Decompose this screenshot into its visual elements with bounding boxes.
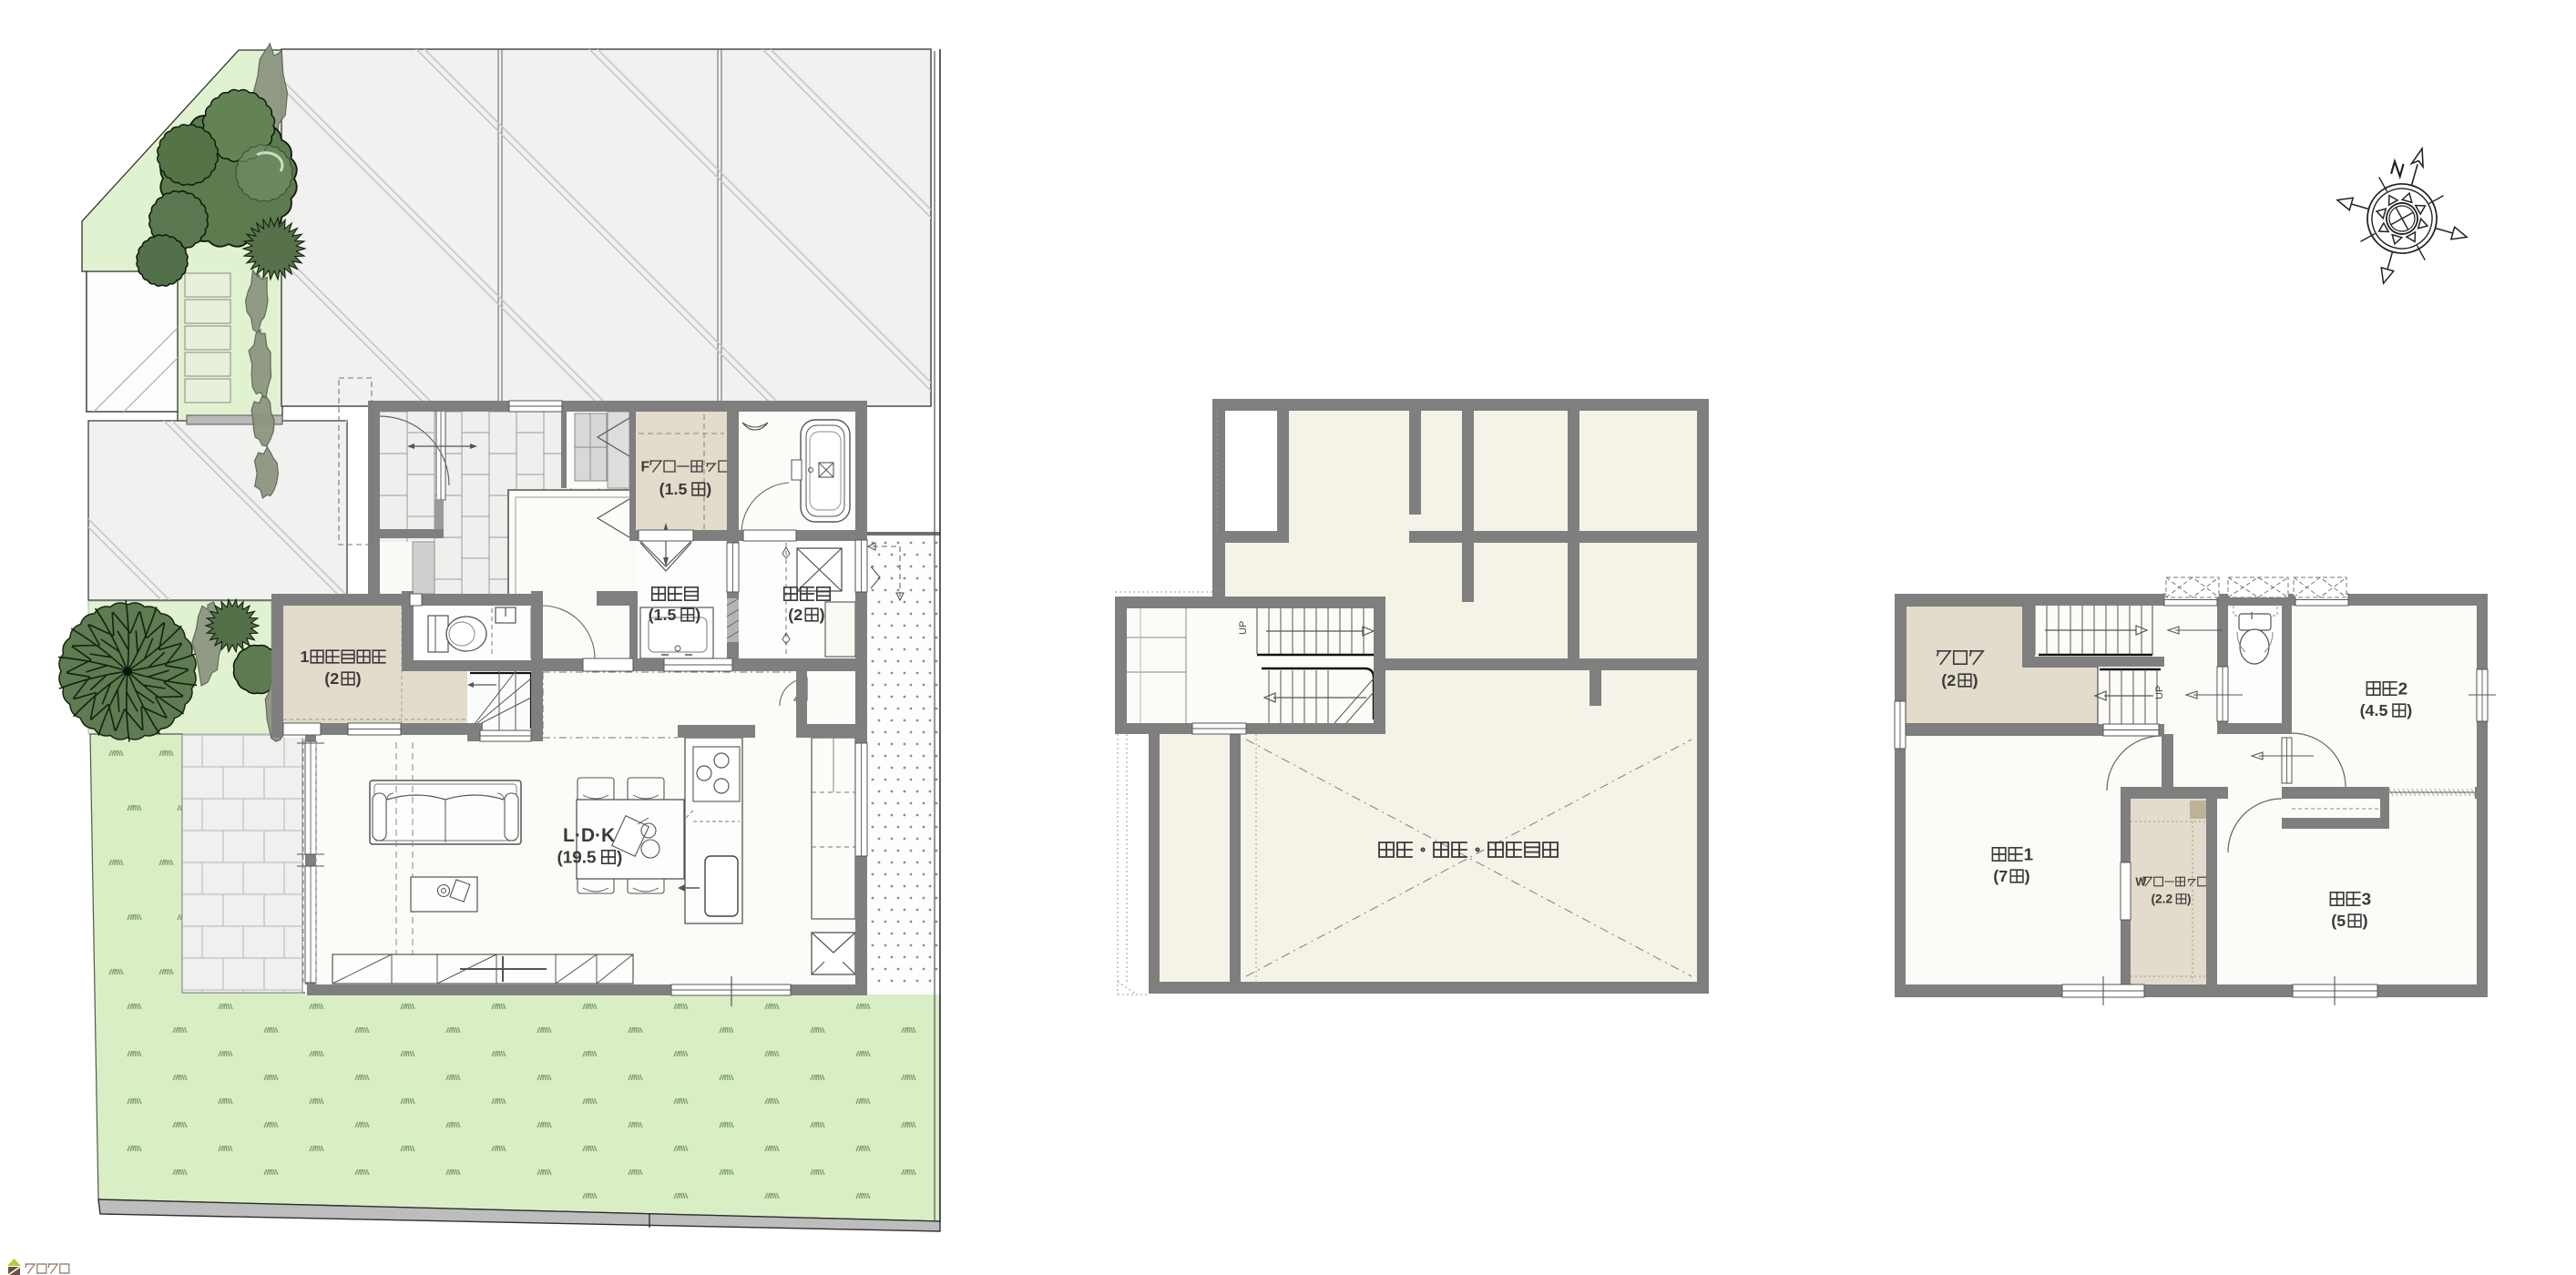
svg-text:3: 3 (2362, 891, 2372, 910)
svg-text:): ) (2407, 701, 2412, 719)
svg-text:): ) (2025, 867, 2030, 885)
svg-text:(4.5: (4.5 (2360, 701, 2388, 719)
svg-text:(7: (7 (1993, 867, 2008, 885)
svg-text:): ) (2363, 912, 2368, 930)
svg-text:UP: UP (1238, 621, 1249, 635)
svg-text:): ) (706, 480, 711, 498)
svg-text:(19.5: (19.5 (557, 849, 597, 868)
svg-text:): ) (2187, 892, 2192, 906)
svg-text:): ) (617, 849, 622, 868)
svg-text:(2: (2 (324, 669, 339, 688)
svg-text:): ) (356, 669, 362, 688)
svg-text:): ) (820, 606, 825, 624)
svg-text:1: 1 (300, 648, 309, 666)
svg-text:F: F (641, 459, 650, 474)
svg-text:(2.2: (2.2 (2152, 892, 2173, 906)
svg-text:(2: (2 (788, 606, 802, 624)
svg-text:L·D·K: L·D·K (563, 825, 615, 846)
svg-text:(5: (5 (2331, 912, 2346, 930)
svg-text:(2: (2 (1941, 671, 1956, 689)
svg-text:2: 2 (2398, 680, 2408, 699)
svg-text:): ) (695, 606, 700, 624)
svg-text:UP: UP (2154, 686, 2165, 699)
svg-text:): ) (1973, 671, 1978, 689)
svg-text:1: 1 (2024, 846, 2034, 865)
svg-text:(1.5: (1.5 (649, 606, 677, 624)
svg-text:(1.5: (1.5 (659, 480, 688, 498)
